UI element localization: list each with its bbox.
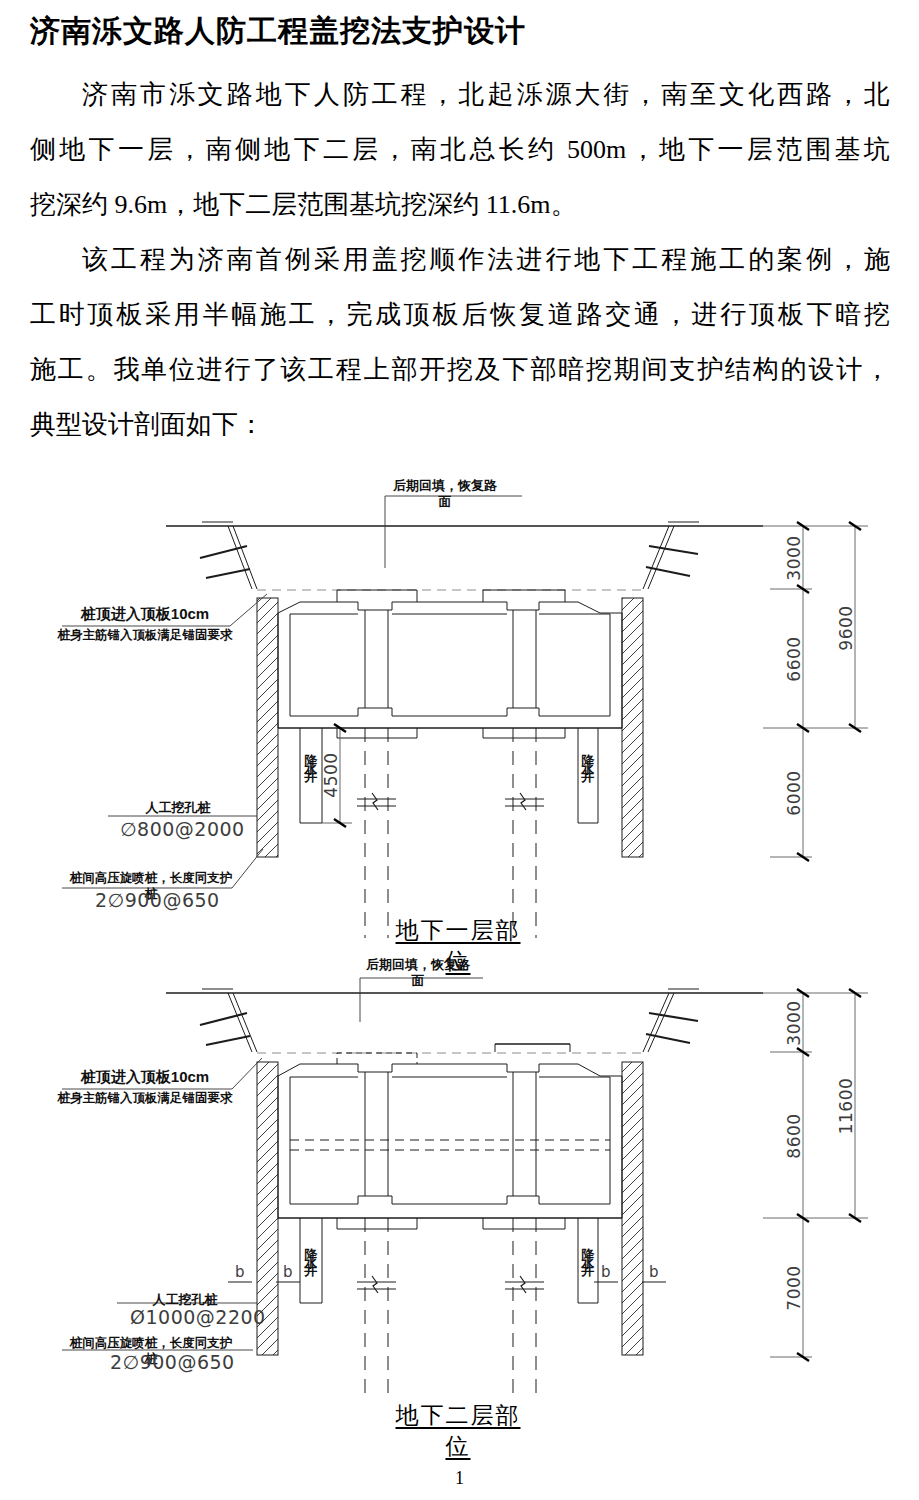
section-marker-b: b [280, 1263, 296, 1281]
dim-8600: 8600 [785, 1101, 803, 1171]
hand-dug-pile-spec: ∅800@2000 [120, 818, 240, 840]
dimension-chain [763, 989, 868, 1361]
dim-6600: 6600 [785, 624, 803, 694]
dim-3000: 3000 [785, 988, 803, 1058]
section-drawings-linework [0, 0, 919, 1500]
section-marker-b: b [232, 1263, 248, 1281]
column-head-notches [358, 602, 539, 610]
roof-tab-raised [495, 1044, 570, 1052]
page-number: 1 [0, 1468, 919, 1489]
dim-6000: 6000 [785, 758, 803, 828]
pile-wall-left [257, 598, 278, 857]
dim-3000: 3000 [785, 523, 803, 593]
box-walls [278, 1076, 622, 1218]
document-page: 济南泺文路人防工程盖挖法支护设计 济南市泺文路地下人防工程，北起泺源大街，南至文… [0, 0, 919, 1500]
backfill-label: 后期回填，恢复路面 [388, 478, 502, 511]
pile-top-note-line2: 桩身主筋锚入顶板满足锚固要求 [56, 1091, 234, 1107]
piles-below-base [365, 728, 536, 938]
hand-dug-pile-spec: Ø1000@2200 [130, 1306, 250, 1328]
diagram2-caption: 地下二层部位 [386, 1400, 530, 1462]
excavation-slope [228, 993, 674, 1052]
break-symbols [357, 793, 544, 810]
dewatering-wells [300, 728, 598, 823]
column-base-notches [358, 1196, 539, 1204]
dimension-chain [763, 522, 868, 861]
section-marker-b: b [646, 1263, 662, 1281]
backfill-label: 后期回填，恢复路面 [361, 957, 475, 990]
dewatering-wells [300, 1218, 598, 1303]
columns [365, 1072, 536, 1196]
dim-11600: 11600 [837, 1071, 855, 1141]
diagram2-linework [62, 978, 868, 1395]
jet-grout-pile-spec: 2∅900@650 [110, 1351, 230, 1373]
column-head-notches [358, 1064, 539, 1072]
roof-top [278, 602, 622, 613]
slope-hatch-marks [200, 1013, 698, 1045]
pile-top-note-line1: 桩顶进入顶板10cm [58, 605, 232, 624]
pile-top-note-line2: 桩身主筋锚入顶板满足锚固要求 [56, 628, 234, 644]
jet-grout-pile-spec: 2∅900@650 [95, 889, 215, 911]
middle-slab-dashed [290, 1140, 610, 1150]
pile-top-note-line1: 桩顶进入顶板10cm [58, 1068, 232, 1087]
pile-wall-right [622, 598, 643, 857]
well-depth-dim-text: 4500 [322, 740, 340, 810]
slope-hatch-marks [200, 546, 698, 578]
dewatering-well-label-right: 降水井 [579, 1238, 595, 1259]
hand-dug-pile-label: 人工挖孔桩 [128, 800, 228, 816]
dewatering-well-label-left: 降水井 [302, 1238, 318, 1259]
piles-below-base [365, 1218, 536, 1395]
base-tabs [337, 728, 565, 738]
dim-9600: 9600 [837, 593, 855, 663]
base-tabs [337, 1218, 565, 1229]
dewatering-well-label-left: 降水井 [302, 744, 318, 765]
columns [365, 610, 536, 708]
roof-tabs [337, 590, 565, 602]
box-walls [278, 613, 622, 728]
break-symbols [357, 1276, 544, 1293]
excavation-slope [228, 526, 674, 589]
dewatering-well-label-right: 降水井 [579, 744, 595, 765]
column-base-notches [358, 708, 539, 716]
roof-tab-cast [337, 1053, 417, 1064]
pile-wall-right [622, 1062, 643, 1355]
roof-top [278, 1064, 622, 1076]
dim-7000: 7000 [785, 1253, 803, 1323]
section-marker-b: b [598, 1263, 614, 1281]
